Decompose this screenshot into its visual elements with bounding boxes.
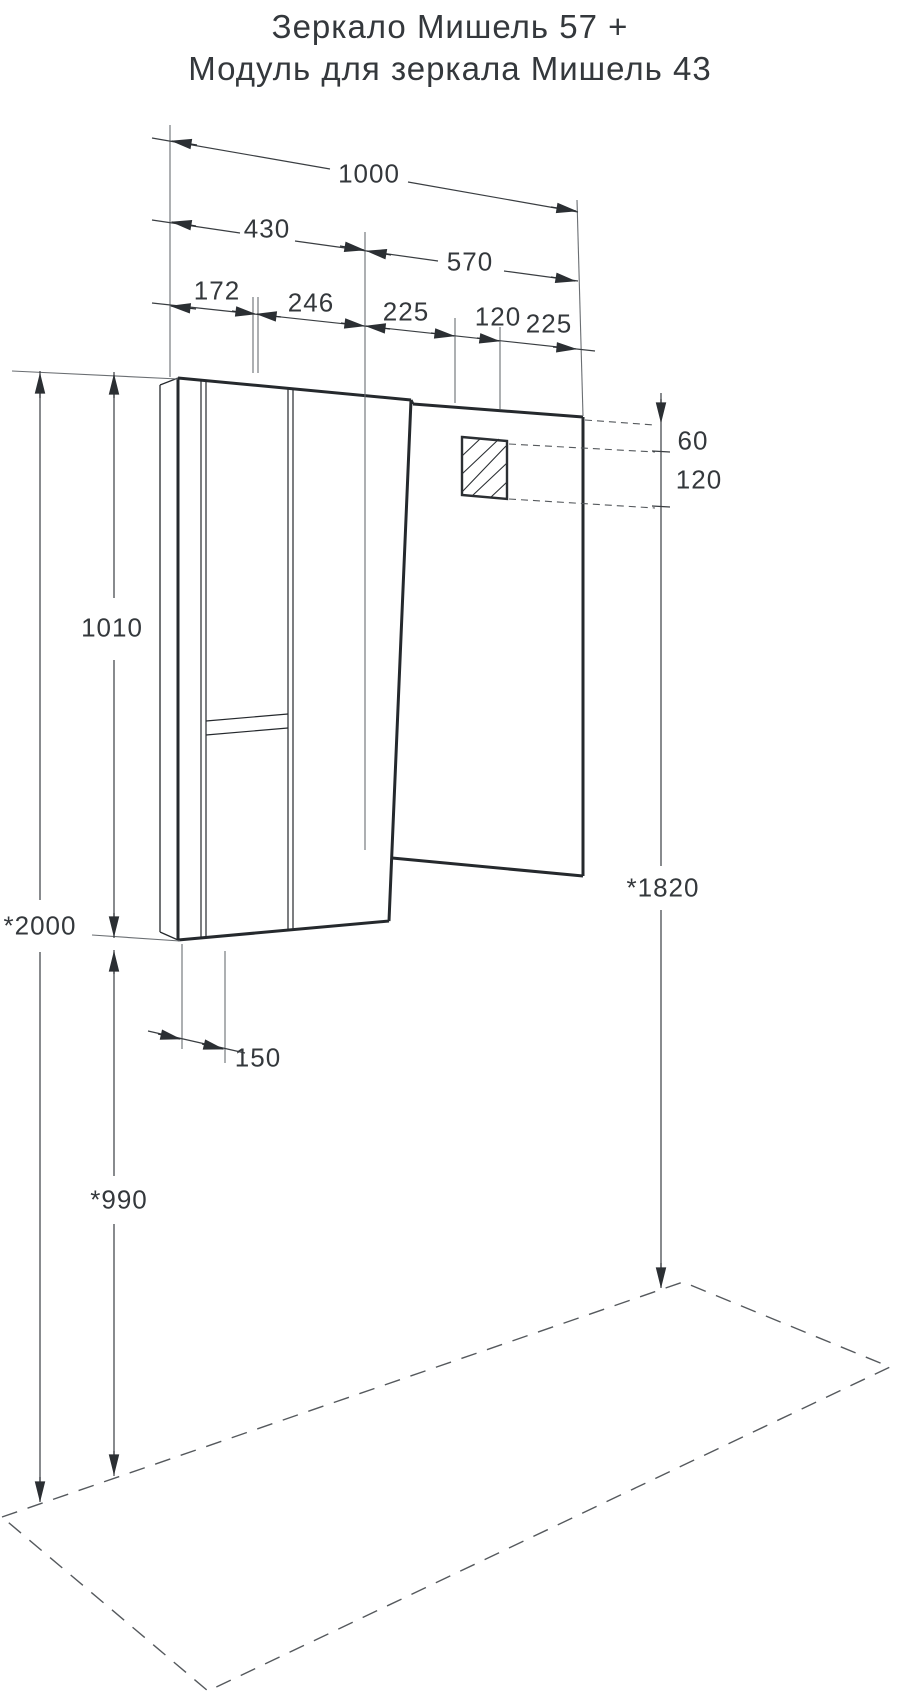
extension-lines (12, 125, 583, 1063)
dim-mounting-height-total: *2000 (4, 911, 77, 942)
dim-segment-246: 246 (288, 288, 334, 319)
technical-drawing-page: Зеркало Мишель 57 + Модуль для зеркала М… (0, 0, 900, 1694)
dim-mirror-top-height: *1820 (627, 873, 700, 904)
dim-segment-225-right: 225 (526, 309, 572, 340)
dim-module-depth: 150 (235, 1043, 281, 1074)
cabinet-module (160, 378, 413, 940)
drawing-title-line2: Модуль для зеркала Мишель 43 (0, 50, 900, 88)
outlet-hatch-icon (462, 437, 507, 499)
dim-segment-225-left: 225 (383, 297, 429, 328)
dim-outlet-offset-top: 60 (678, 426, 709, 457)
drawing-title-line1: Зеркало Мишель 57 + (0, 8, 900, 46)
floor-outline (2, 1282, 890, 1691)
dimension-lines (40, 138, 670, 1502)
dim-mirror-width: 570 (447, 247, 493, 278)
dim-module-bottom-height: *990 (90, 1185, 148, 1216)
dim-outlet-height: 120 (676, 465, 722, 496)
dimension-arrows (40, 141, 661, 1501)
dim-segment-120: 120 (475, 302, 521, 333)
mirror-panel (392, 404, 583, 876)
dim-total-width: 1000 (338, 159, 400, 190)
dim-segment-172: 172 (194, 276, 240, 307)
dim-module-height: 1010 (81, 613, 143, 644)
dim-module-width: 430 (244, 214, 290, 245)
